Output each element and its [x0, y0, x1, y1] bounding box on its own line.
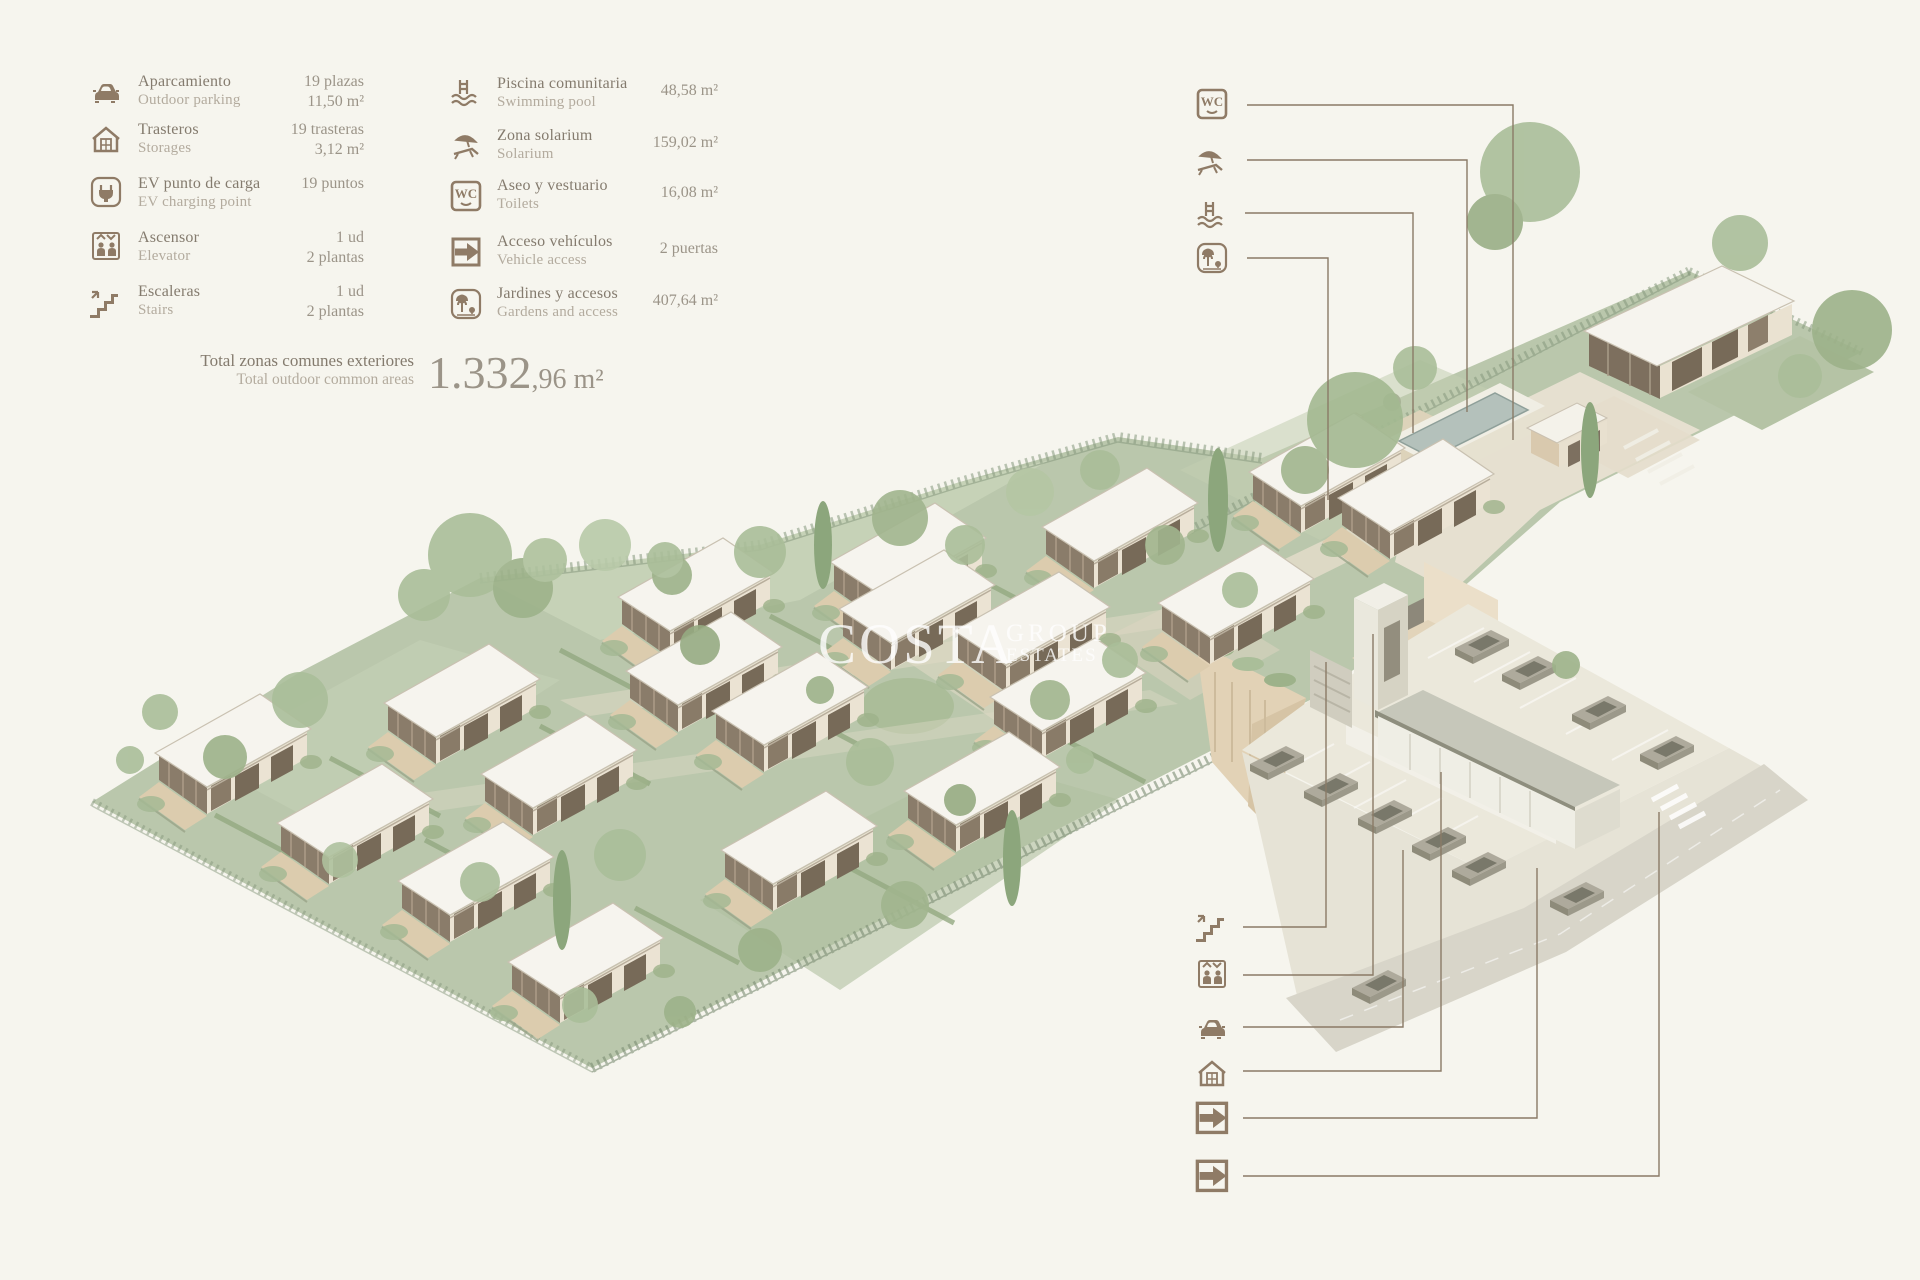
svg-text:EV charging point: EV charging point [138, 194, 252, 210]
svg-text:Aparcamiento: Aparcamiento [138, 73, 231, 90]
svg-text:11,50 m²: 11,50 m² [307, 93, 364, 110]
svg-text:19 plazas: 19 plazas [304, 73, 364, 90]
svg-text:3,12 m²: 3,12 m² [315, 141, 364, 158]
svg-text:Aseo y vestuario: Aseo y vestuario [497, 177, 608, 194]
svg-text:159,02 m²: 159,02 m² [653, 134, 718, 151]
svg-text:2 puertas: 2 puertas [660, 240, 718, 257]
svg-text:48,58 m²: 48,58 m² [661, 82, 718, 99]
svg-text:EV punto de carga: EV punto de carga [138, 175, 260, 192]
svg-text:ESTATES: ESTATES [1006, 645, 1098, 666]
svg-text:407,64 m²: 407,64 m² [653, 292, 718, 309]
svg-text:Stairs: Stairs [138, 302, 173, 318]
svg-text:2 plantas: 2 plantas [307, 303, 364, 320]
svg-text:Escaleras: Escaleras [138, 283, 200, 300]
svg-text:Ascensor: Ascensor [138, 229, 200, 246]
svg-text:19 puntos: 19 puntos [301, 175, 364, 192]
svg-text:Total outdoor common areas: Total outdoor common areas [236, 371, 414, 388]
svg-text:Swimming pool: Swimming pool [497, 94, 596, 110]
svg-text:COSTA: COSTA [818, 613, 1015, 676]
svg-text:Trasteros: Trasteros [138, 121, 199, 138]
svg-text:1 ud: 1 ud [336, 229, 364, 246]
svg-text:19 trasteras: 19 trasteras [291, 121, 364, 138]
svg-text:Total zonas comunes exteriores: Total zonas comunes exteriores [200, 351, 414, 370]
svg-text:Outdoor parking: Outdoor parking [138, 92, 241, 108]
svg-text:Gardens and access: Gardens and access [497, 304, 618, 320]
svg-text:Solarium: Solarium [497, 146, 554, 162]
svg-text:Vehicle access: Vehicle access [497, 252, 587, 268]
svg-text:Elevator: Elevator [138, 248, 190, 264]
svg-text:Acceso vehículos: Acceso vehículos [497, 233, 613, 250]
svg-text:Piscina comunitaria: Piscina comunitaria [497, 75, 627, 92]
svg-text:16,08 m²: 16,08 m² [661, 184, 718, 201]
svg-text:Storages: Storages [138, 140, 191, 156]
svg-text:Jardines y accesos: Jardines y accesos [497, 285, 618, 302]
svg-text:2 plantas: 2 plantas [307, 249, 364, 266]
svg-text:GROUP: GROUP [1006, 620, 1111, 647]
svg-text:Zona solarium: Zona solarium [497, 127, 593, 144]
svg-text:Toilets: Toilets [497, 196, 539, 212]
svg-text:1 ud: 1 ud [336, 283, 364, 300]
